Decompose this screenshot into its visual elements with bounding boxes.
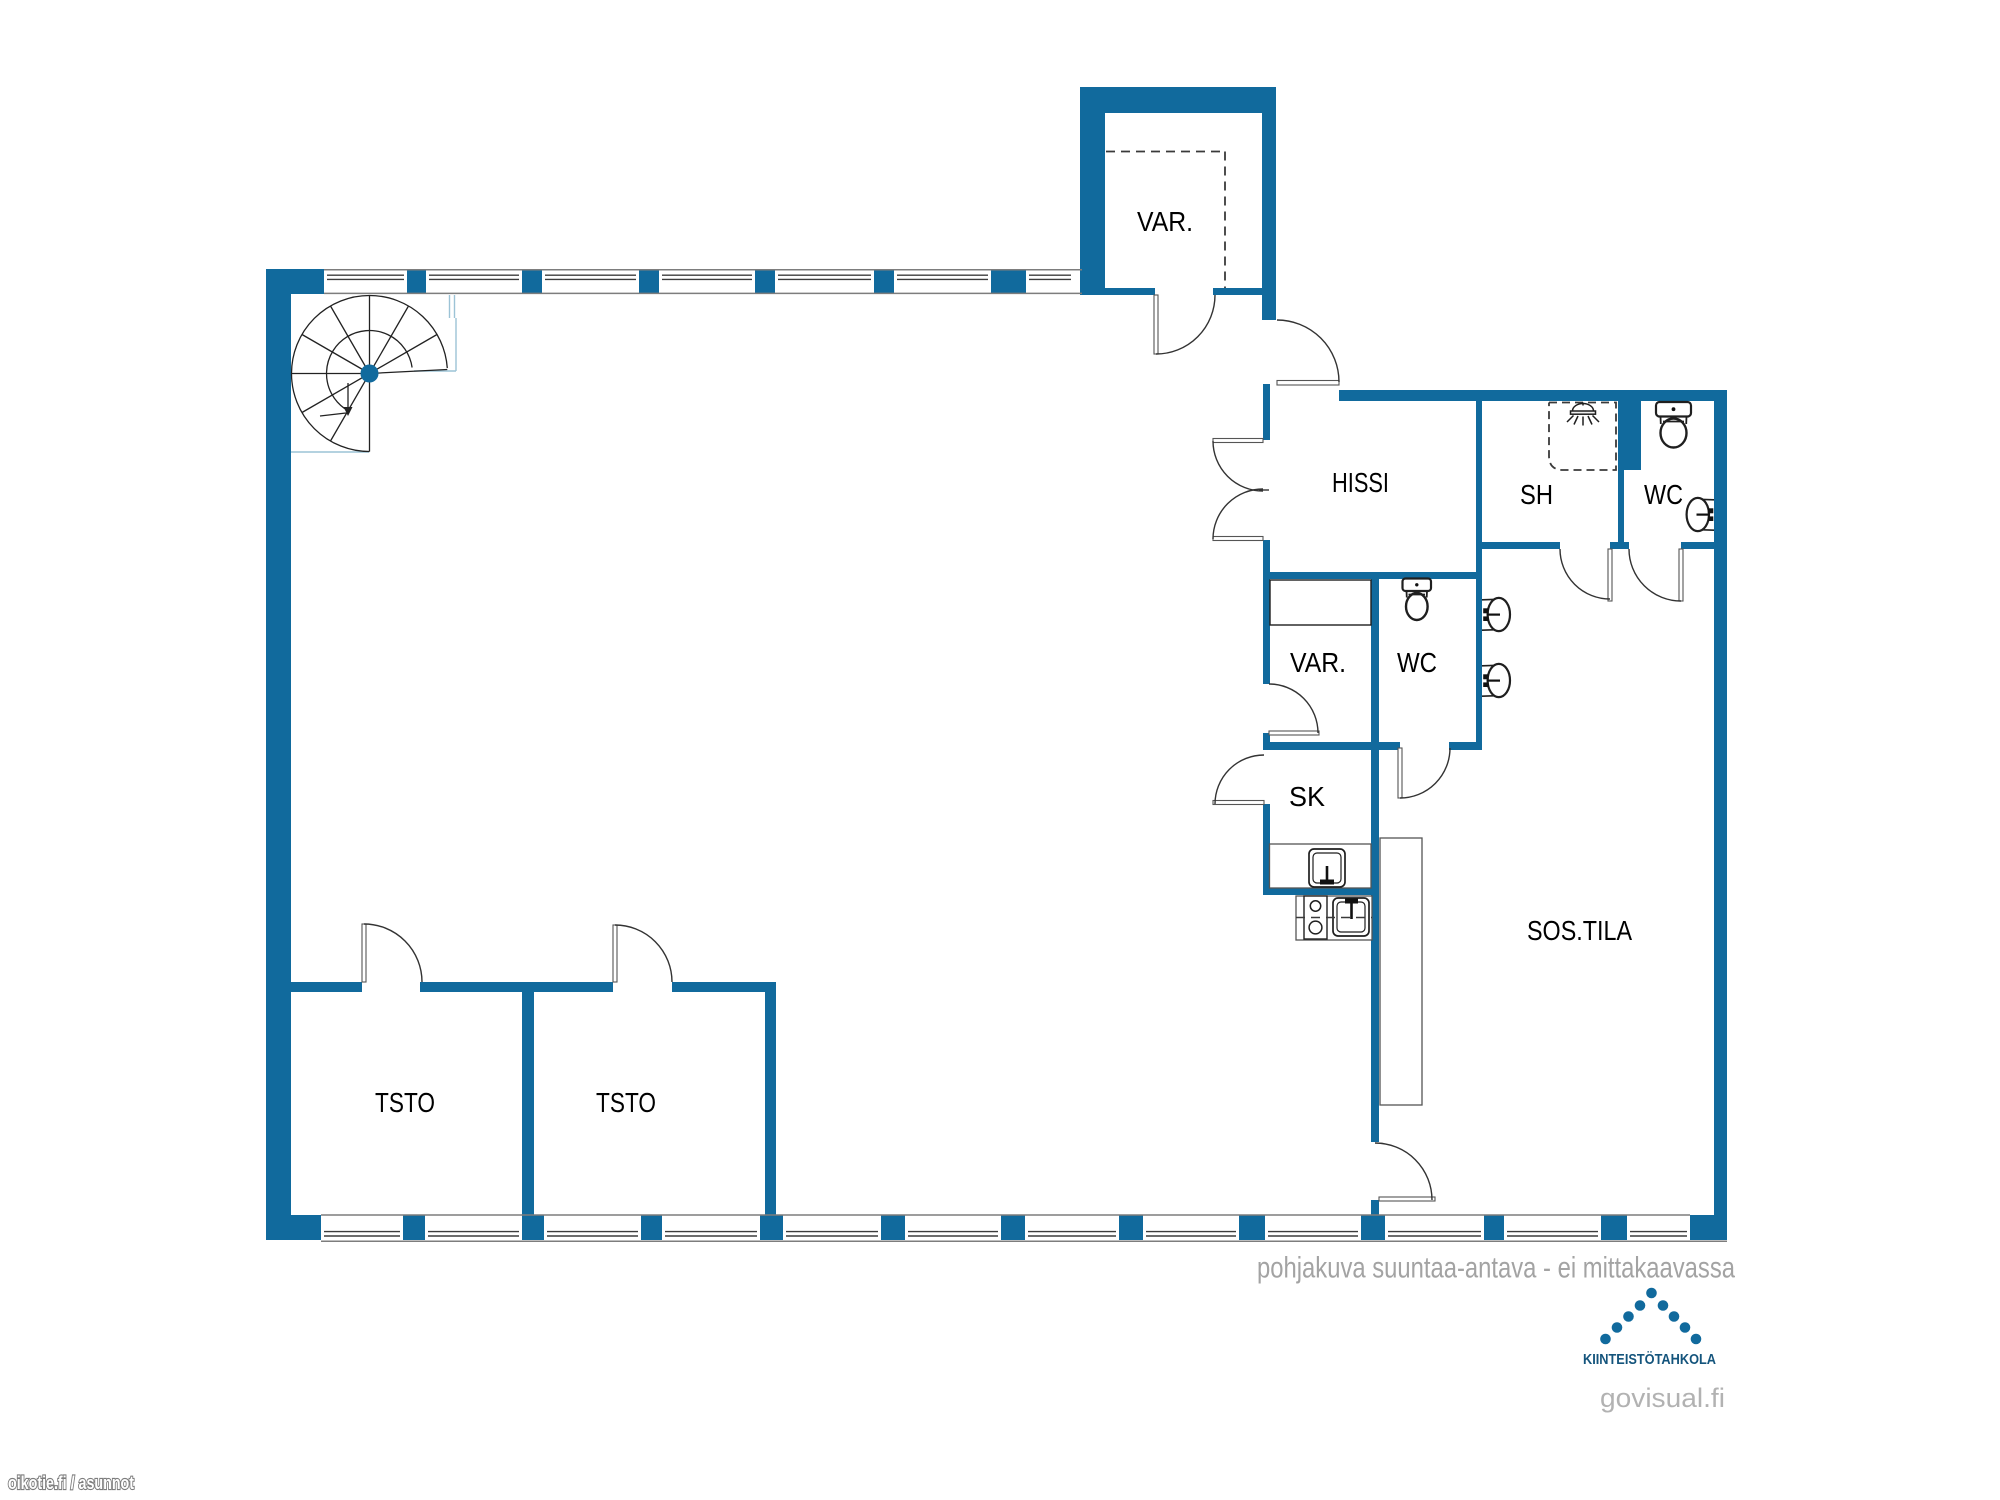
svg-text:TSTO: TSTO: [375, 1087, 435, 1118]
svg-text:SK: SK: [1289, 781, 1325, 812]
svg-text:SOS.TILA: SOS.TILA: [1527, 915, 1632, 946]
svg-text:oikotie.fi / asunnot: oikotie.fi / asunnot: [8, 1473, 134, 1493]
svg-text:TSTO: TSTO: [596, 1087, 656, 1118]
svg-text:HISSI: HISSI: [1332, 467, 1389, 498]
svg-text:SH: SH: [1520, 479, 1553, 510]
svg-text:VAR.: VAR.: [1290, 647, 1346, 678]
svg-text:govisual.fi: govisual.fi: [1600, 1383, 1725, 1413]
svg-text:WC: WC: [1397, 647, 1437, 678]
svg-text:VAR.: VAR.: [1137, 206, 1193, 237]
svg-text:pohjakuva suuntaa-antava - ei: pohjakuva suuntaa-antava - ei mittakaava…: [1257, 1252, 1735, 1285]
svg-text:WC: WC: [1644, 479, 1683, 510]
svg-text:KIINTEISTÖTAHKOLA: KIINTEISTÖTAHKOLA: [1583, 1351, 1716, 1368]
